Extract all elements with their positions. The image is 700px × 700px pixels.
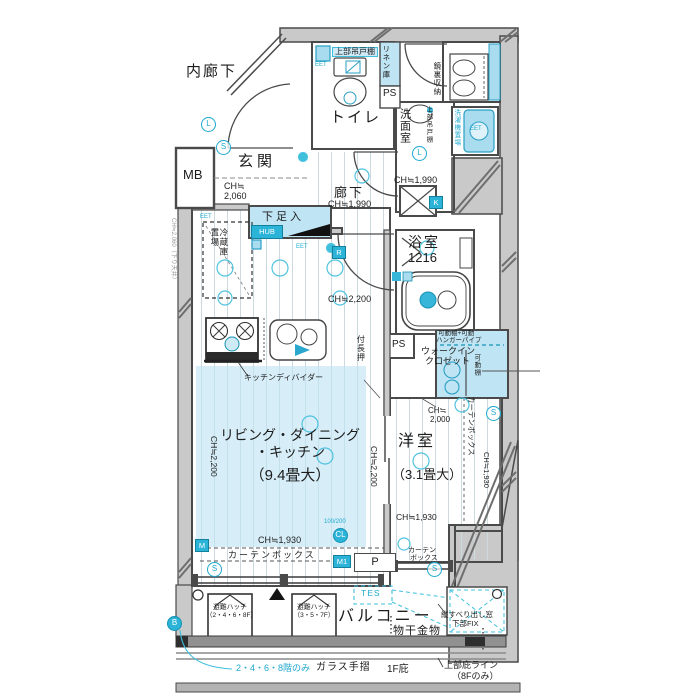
ldk-window-ch: CH≒1,930 bbox=[258, 536, 301, 545]
western-room-size: （3.1畳大） bbox=[392, 468, 462, 482]
floors-only-note: 2・4・6・8階のみ bbox=[236, 664, 310, 673]
eave-line-2: （8Fのみ） bbox=[452, 672, 499, 681]
nageshi-label: 付長押 bbox=[356, 335, 364, 379]
washroom-upper-cupboard-label: 上部吊戸棚 bbox=[424, 106, 431, 154]
western-room-label: 洋室 bbox=[398, 434, 436, 451]
bath-size-label: 1216 bbox=[408, 251, 437, 265]
wic-name-2: クロゼット bbox=[425, 357, 470, 366]
l-symbol-washroom: L bbox=[412, 146, 427, 161]
window-note-2: 下部FIX bbox=[452, 620, 479, 628]
l-symbol-genkan: L bbox=[201, 117, 216, 132]
eave-line-1: 上部庇ライン bbox=[444, 661, 498, 670]
cl-note: 100/200 bbox=[324, 519, 346, 525]
western-curtain-box-v: カーテンボックス bbox=[467, 396, 475, 456]
bath-label: 浴室 bbox=[408, 235, 440, 250]
s-symbol-window-right: S bbox=[427, 562, 442, 577]
western-curtain-1: カーテン bbox=[408, 547, 436, 554]
shaft-ch-label: CH≒1,990 bbox=[394, 176, 437, 185]
entrance-ch-2: 2,060 bbox=[224, 192, 247, 201]
eet-badge-hall: EET bbox=[296, 244, 308, 250]
r-badge: R bbox=[332, 246, 346, 259]
hatch2-label: 避難ハッチ bbox=[293, 604, 335, 611]
kitchen-divider-label: キッチンディバイダー bbox=[244, 374, 323, 382]
ldk-ch-left: CH≒2,200 bbox=[209, 436, 218, 477]
eet-badge-entrance: EET bbox=[200, 214, 212, 220]
m1-badge: M1 bbox=[333, 555, 351, 568]
wic-side-shelf-label: 可動棚 bbox=[472, 354, 479, 390]
eet-badge-toilet: EET bbox=[315, 62, 327, 68]
s-symbol-western: S bbox=[486, 406, 501, 421]
tes-badge: TES bbox=[361, 589, 381, 598]
kitchen-ch-label: CH≒2,200 bbox=[328, 295, 371, 304]
ldk-name-2: ・キッチン bbox=[200, 445, 380, 460]
ldk-size-label: （9.4畳大） bbox=[200, 468, 380, 484]
fridge-space-label: 冷蔵庫置場 bbox=[210, 228, 228, 296]
balcony-label: バルコニー bbox=[338, 609, 433, 626]
hatch1-floors: （2・4・6・8F） bbox=[206, 613, 254, 620]
k-badge: K bbox=[429, 196, 443, 209]
ps-top-label: PS bbox=[383, 89, 396, 100]
ldk-name-1: リビング・ダイニング bbox=[200, 428, 380, 443]
left-wall-note: CH≒2,060（下り天井） bbox=[170, 218, 176, 283]
ps-mid-label: PS bbox=[392, 340, 405, 351]
inner-corridor-label: 内廊下 bbox=[186, 64, 237, 80]
s-symbol-window-left: S bbox=[207, 562, 222, 577]
hallway-ch-label: CH≒1,990 bbox=[328, 200, 371, 209]
western-ch-low: CH≒1,930 bbox=[396, 513, 437, 522]
ldk-ch-right: CH≒2,200 bbox=[369, 446, 378, 487]
hub-badge: HUB bbox=[251, 225, 283, 239]
floorplan-page: 内廊下 MB 玄関 CH≒ 2,060 下足入 HUB EET 冷蔵庫置場 トイ… bbox=[0, 0, 700, 700]
washer-space-label: 洗濯機置場 bbox=[452, 109, 459, 155]
toilet-label: トイレ bbox=[330, 110, 381, 126]
mirror-storage-label: 鏡裏収納 bbox=[433, 62, 441, 102]
cl-badge: CL bbox=[333, 528, 348, 543]
entrance-label: 玄関 bbox=[238, 154, 276, 170]
washroom-label: 洗面室 bbox=[398, 108, 410, 178]
hatch2-floors: （3・5・7F） bbox=[292, 613, 336, 620]
western-ch-right-v: CH≒1,930 bbox=[482, 452, 490, 488]
laundry-label: 物干金物 bbox=[393, 626, 441, 638]
linen-closet-label: リネン庫 bbox=[382, 45, 390, 85]
glass-rail-label: ガラス手摺 bbox=[316, 663, 371, 674]
hatch1-label: 避難ハッチ bbox=[209, 604, 251, 611]
m-badge: M bbox=[195, 539, 209, 552]
hallway-label: 廊下 bbox=[334, 186, 364, 200]
shoe-box-label: 下足入 bbox=[262, 212, 304, 224]
b-symbol-balcony: B bbox=[167, 616, 182, 631]
p-badge: P bbox=[354, 553, 396, 572]
meter-box-label: MB bbox=[183, 168, 203, 182]
toilet-upper-cupboard-label: 上部吊戸棚 bbox=[332, 47, 378, 57]
sliding-door bbox=[383, 416, 391, 504]
ldk-curtain-box-label: カーテンボックス bbox=[228, 551, 316, 560]
eet-badge-washer: EET bbox=[470, 126, 482, 132]
wic-shelf-note-2: ハンガーパイプ bbox=[436, 338, 481, 345]
window-note-1: 縦すべり出し窓 bbox=[441, 611, 493, 619]
western-ch-2: 2,000 bbox=[430, 416, 450, 424]
s-symbol-genkan: S bbox=[216, 140, 231, 155]
f1-eave-label: 1F庇 bbox=[387, 665, 409, 676]
floorplan-structure bbox=[0, 0, 700, 700]
